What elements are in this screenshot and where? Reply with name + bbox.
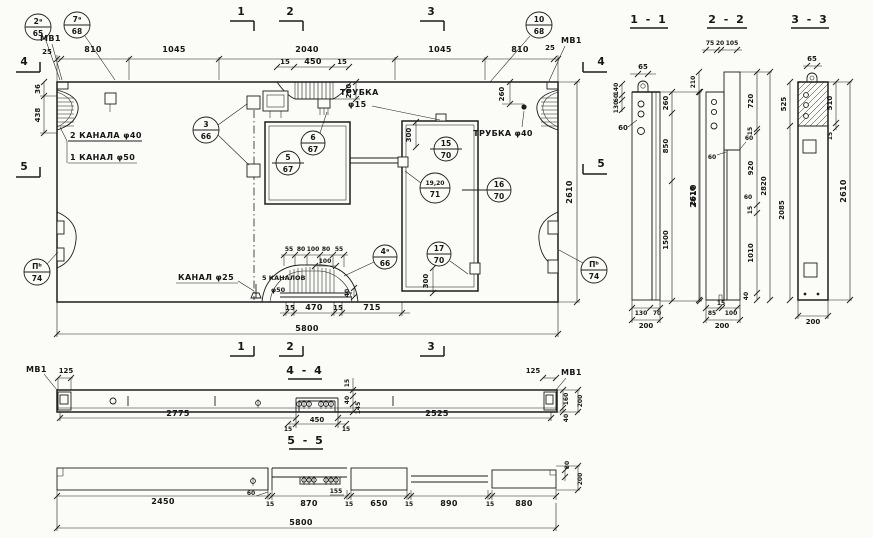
section-2-2: 2 - 2 75 20 105 210 2610 60 60 60 720 15… [689, 13, 773, 330]
callout-2b-right: Пᵇ 74 [559, 250, 607, 283]
dim-label: 155 [330, 488, 343, 495]
dim-label: 1500 [662, 230, 670, 250]
dim-label: 810 [511, 45, 529, 54]
plan-view-geometry [57, 82, 558, 302]
dim-label: 20 [716, 40, 724, 47]
dim-label: 15 [284, 426, 292, 433]
dim-label: 100 [307, 246, 320, 253]
dim-label: 140 [613, 83, 620, 96]
cut-mark-2-top: 2 [286, 6, 293, 18]
section-title-3-3: 3 - 3 [791, 13, 829, 26]
cut-mark-5-right: 5 [597, 158, 604, 170]
dim-label: 55 [335, 246, 343, 253]
view-title-5-5: 5 - 5 [287, 434, 325, 447]
dim-label: 130 [613, 101, 620, 114]
cut-mark-5-left: 5 [20, 161, 27, 173]
dim-label: 80 [564, 461, 571, 469]
cut-mark-2-bottom: 2 [286, 341, 293, 353]
dim-label: 15 [747, 127, 754, 135]
dim-label: 200 [577, 395, 584, 408]
svg-text:74: 74 [32, 274, 42, 283]
dim-label: 525 [780, 97, 788, 112]
dim-label: 36 [34, 84, 42, 94]
svg-text:70: 70 [434, 256, 444, 265]
dim-label: 720 [747, 94, 755, 109]
callout-2a: 2ᵃ 65 [25, 14, 60, 80]
dim-label: 470 [305, 303, 323, 312]
dim-label: 210 [690, 76, 697, 89]
dim-label: 15 [337, 58, 347, 66]
svg-text:68: 68 [534, 27, 544, 36]
cut-mark-1-bottom: 1 [237, 341, 244, 353]
svg-text:74: 74 [589, 272, 599, 281]
dim-label: 810 [84, 45, 102, 54]
dim-label: 60 [708, 154, 716, 161]
section-title-1-1: 1 - 1 [630, 13, 668, 26]
dim-label: 105 [726, 40, 739, 47]
anchor-label-mv1-v44-right: МВ1 [561, 368, 582, 377]
drawing-sheet: 1 2 3 1 2 3 4 4 5 5 25 810 1045 2040 104… [0, 0, 873, 538]
dim-label: 450 [310, 416, 325, 424]
dim-label: 75 [706, 40, 714, 47]
dim-label: 15 [747, 206, 754, 214]
svg-text:15: 15 [441, 139, 451, 148]
section-title-2-2: 2 - 2 [708, 13, 746, 26]
svg-text:4ᵃ: 4ᵃ [381, 247, 390, 256]
section-3-3: 3 - 3 65 525 2085 510 15 2610 200 [778, 13, 853, 326]
dim-label: 15 [827, 132, 834, 140]
dim-label: 1010 [747, 243, 755, 263]
svg-text:2ᵃ: 2ᵃ [34, 17, 43, 26]
dim-label: 438 [34, 108, 42, 123]
dim-label: 450 [304, 57, 322, 66]
dim-label: 60 [618, 124, 628, 132]
dim-label: 60 [744, 194, 752, 201]
dim-label: 65 [638, 63, 648, 71]
dim-label: 1045 [428, 45, 452, 54]
dim-label: 200 [639, 322, 654, 330]
label-5-channels-f50: φ50 [271, 286, 286, 294]
dim-label: 200 [577, 473, 584, 486]
dim-label: 40 [743, 292, 750, 300]
svg-text:Пᵇ: Пᵇ [589, 260, 599, 269]
dim-label: 15 [486, 501, 494, 508]
dim-label: 260 [498, 87, 506, 102]
svg-text:67: 67 [283, 165, 293, 174]
dim-label: 55 [285, 246, 293, 253]
dim-label: 15 [405, 501, 413, 508]
dim-label: 15 [717, 300, 725, 307]
dim-label: 15 [342, 426, 350, 433]
dim-label: 2450 [151, 497, 175, 506]
section-1-1: 1 - 1 65 140 60 130 60 260 850 1500 2610… [613, 13, 703, 330]
callout-4a: 4ᵃ 66 [344, 245, 397, 276]
dim-label: 300 [405, 128, 413, 143]
dim-label: 2820 [760, 176, 768, 196]
dim-label: 125 [526, 367, 541, 375]
label-tube-15-line2: φ15 [348, 100, 367, 109]
dim-label: 890 [440, 499, 458, 508]
dim-label: 15 [266, 501, 274, 508]
svg-text:17: 17 [434, 244, 444, 253]
svg-text:68: 68 [72, 27, 82, 36]
dim-label: 145 [355, 402, 362, 415]
dim-label: 15 [280, 58, 290, 66]
dim-label: 130 [635, 310, 648, 317]
label-2-channels-f40: 2 КАНАЛА φ40 [70, 131, 142, 140]
dim-label: 870 [300, 499, 318, 508]
callout-19-20: 19,20 71 [405, 171, 450, 203]
dim-label: 2610 [565, 180, 574, 204]
cut-mark-4-right: 4 [597, 56, 604, 68]
dim-label: 25 [42, 48, 52, 56]
svg-text:66: 66 [380, 259, 390, 268]
dim-label: 715 [363, 303, 381, 312]
label-1-channel-f50: 1 КАНАЛ φ50 [70, 153, 135, 162]
svg-text:71: 71 [430, 190, 440, 199]
dim-label: 15 [333, 304, 343, 312]
dim-label: 5800 [295, 324, 319, 333]
svg-text:7ᵃ: 7ᵃ [73, 15, 82, 24]
dim-label: 80 [297, 246, 305, 253]
svg-text:Пᵇ: Пᵇ [32, 262, 42, 271]
view-4-4: 4 - 4 МВ1 125 МВ1 125 2775 2525 15 450 1… [26, 364, 584, 433]
callout-3: 3 66 [193, 104, 249, 165]
dim-label: 510 [826, 96, 834, 111]
cut-mark-4-left: 4 [20, 56, 27, 68]
svg-text:16: 16 [494, 180, 504, 189]
dim-label: 880 [515, 499, 533, 508]
label-tube-15-line1: ТРУБКА [340, 88, 379, 97]
dim-label: 850 [662, 139, 670, 154]
view-5-5: 5 - 5 2450 15 870 15 650 15 890 15 880 6… [54, 434, 584, 531]
dim-label: 920 [747, 161, 755, 176]
dim-label: 85 [708, 310, 716, 317]
dim-label: 40 [563, 414, 570, 422]
dim-label: 65 [807, 55, 817, 63]
cut-mark-1-top: 1 [237, 6, 244, 18]
label-channel-f25: КАНАЛ φ25 [178, 273, 234, 282]
dim-label: 2610 [689, 186, 697, 206]
svg-text:65: 65 [33, 29, 43, 38]
dim-label: 80 [322, 246, 330, 253]
dim-label: 5800 [289, 518, 313, 527]
svg-text:5: 5 [285, 153, 290, 162]
dim-label: 40 [344, 289, 351, 297]
dim-label: 60 [247, 490, 255, 497]
cut-mark-3-top: 3 [427, 6, 434, 18]
dim-label: 260 [662, 96, 670, 111]
dim-label: 200 [715, 322, 730, 330]
dim-label: 200 [806, 318, 821, 326]
svg-text:19,20: 19,20 [426, 180, 445, 187]
svg-text:6: 6 [310, 133, 315, 142]
dim-label: 2040 [295, 45, 319, 54]
dim-label: 15 [345, 501, 353, 508]
dim-label: 100 [319, 258, 332, 265]
svg-text:67: 67 [308, 145, 318, 154]
blueprint-canvas: 1 2 3 1 2 3 4 4 5 5 25 810 1045 2040 104… [0, 0, 873, 538]
dim-label: 15 [285, 304, 295, 312]
dim-label: 2525 [425, 409, 449, 418]
cut-mark-3-bottom: 3 [427, 341, 434, 353]
dim-label: 25 [545, 44, 555, 52]
dim-label: 2775 [166, 409, 190, 418]
dim-label: 100 [725, 310, 738, 317]
svg-text:66: 66 [201, 132, 211, 141]
dim-label: 160 [563, 393, 570, 406]
callout-6: 6 67 [301, 112, 327, 155]
label-5-channels: 5 КАНАЛОВ [262, 274, 306, 282]
anchor-label-mv1-v44-left: МВ1 [26, 365, 47, 374]
svg-text:70: 70 [494, 192, 504, 201]
callout-16: 16 70 [462, 178, 511, 202]
svg-text:10: 10 [534, 15, 544, 24]
callout-5: 5 67 [272, 151, 304, 175]
dim-label: 125 [59, 367, 74, 375]
dim-label: 1045 [162, 45, 186, 54]
callout-15: 15 70 [430, 137, 462, 161]
callout-2b-left: Пᵇ 74 [24, 252, 58, 285]
dim-label: 300 [422, 274, 430, 289]
svg-text:3: 3 [203, 120, 208, 129]
dim-label: 650 [370, 499, 388, 508]
dim-label: 2085 [778, 200, 786, 220]
dim-label: 15 [344, 379, 351, 387]
label-tube-40: ТРУБКА φ40 [473, 129, 533, 138]
dim-label: 40 [344, 396, 351, 404]
view-title-4-4: 4 - 4 [286, 364, 324, 377]
dim-label: 2610 [839, 179, 848, 203]
svg-text:70: 70 [441, 151, 451, 160]
anchor-symbols-v55 [251, 476, 339, 486]
anchor-label-mv1-right: МВ1 [561, 36, 582, 45]
